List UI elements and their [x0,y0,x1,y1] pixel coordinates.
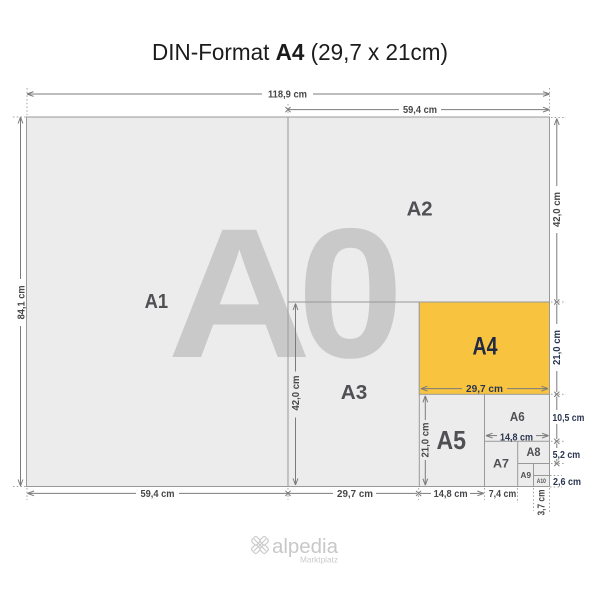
svg-text:10,5 cm: 10,5 cm [552,413,584,424]
svg-text:A5: A5 [436,427,466,455]
svg-text:A4: A4 [473,334,498,361]
svg-text:A9: A9 [521,470,532,480]
svg-text:A: A [167,191,311,397]
svg-text:59,4 cm: 59,4 cm [141,489,175,500]
svg-text:59,4 cm: 59,4 cm [403,105,437,116]
svg-text:A7: A7 [493,457,509,471]
svg-text:118,9 cm: 118,9 cm [268,89,307,100]
svg-text:DIN-Format A4 (29,7 x 21cm): DIN-Format A4 (29,7 x 21cm) [152,39,448,65]
svg-text:84,1 cm: 84,1 cm [16,285,27,319]
svg-text:7,4 cm: 7,4 cm [489,489,517,500]
svg-text:2,6 cm: 2,6 cm [553,477,581,488]
svg-text:14,8 cm: 14,8 cm [434,489,468,500]
svg-text:Marktplatz: Marktplatz [300,555,338,565]
svg-text:0: 0 [298,191,404,397]
svg-text:A3: A3 [341,381,368,404]
svg-text:29,7 cm: 29,7 cm [466,384,503,395]
svg-text:42,0 cm: 42,0 cm [291,375,302,410]
svg-text:21,0 cm: 21,0 cm [552,330,563,365]
svg-text:A2: A2 [407,198,433,221]
svg-text:42,0 cm: 42,0 cm [552,192,563,227]
svg-text:A1: A1 [145,290,169,313]
svg-text:A8: A8 [527,445,541,459]
svg-text:3,7 cm: 3,7 cm [536,489,547,515]
svg-text:29,7 cm: 29,7 cm [337,489,373,500]
svg-text:A6: A6 [510,410,525,424]
svg-text:14,8 cm: 14,8 cm [500,432,533,443]
svg-text:21,0 cm: 21,0 cm [421,422,432,457]
svg-text:A10: A10 [537,478,546,485]
svg-text:5,2 cm: 5,2 cm [553,450,581,461]
